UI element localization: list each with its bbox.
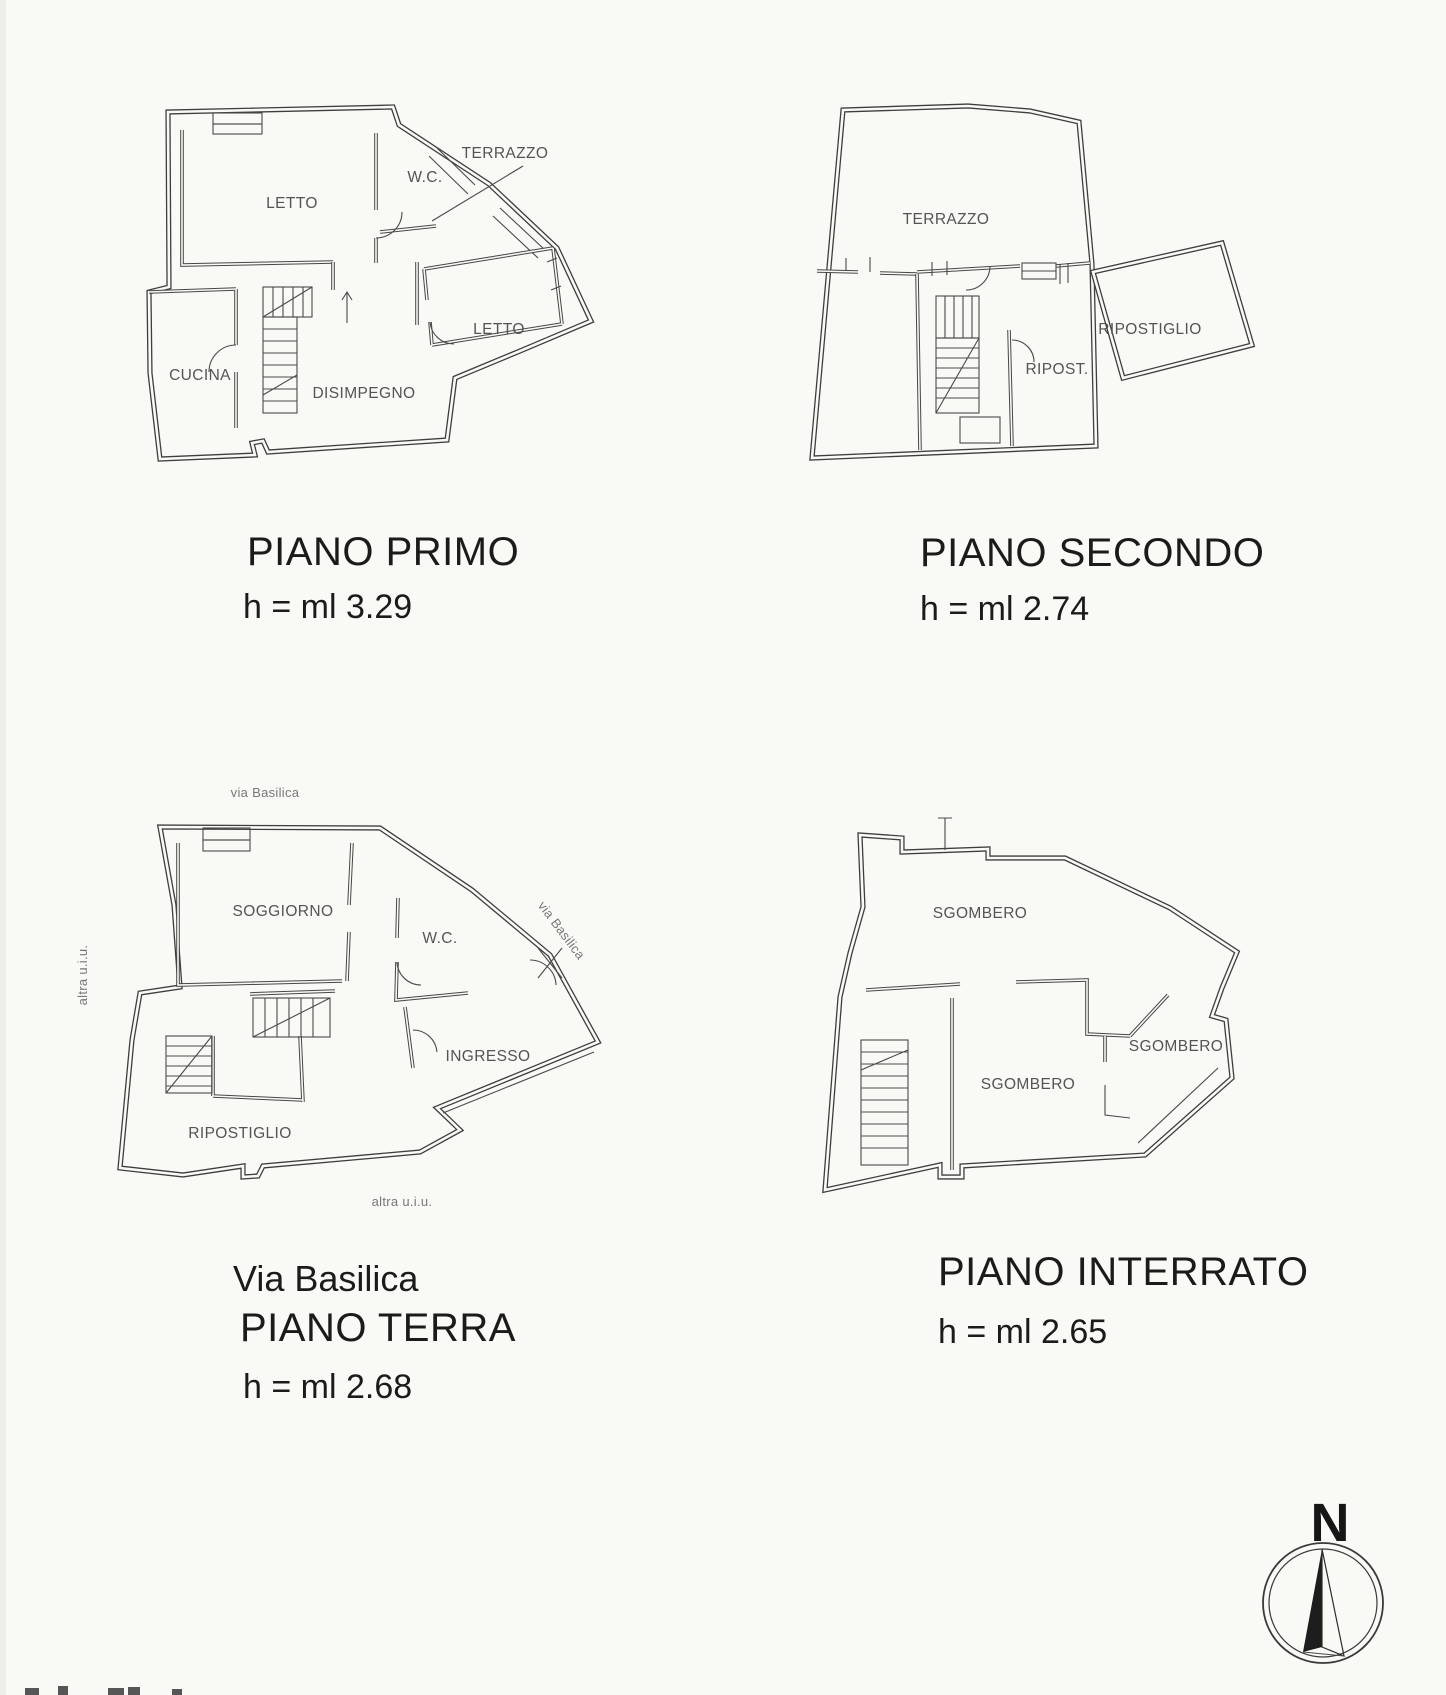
room-label-terrazzo-2: TERRAZZO: [903, 211, 990, 228]
floorplan-sheet: LETTO W.C. TERRAZZO LETTO CUCINA DISIMPE…: [0, 0, 1446, 1695]
plan-height-piano-secondo: h = ml 2.74: [920, 590, 1089, 628]
north-compass: N: [1263, 1493, 1383, 1663]
room-label-letto-2: LETTO: [473, 321, 525, 338]
room-label-ripost: RIPOST.: [1025, 361, 1088, 378]
staircase: [263, 287, 312, 413]
room-label-ripostiglio-terra: RIPOSTIGLIO: [188, 1125, 291, 1142]
compass-outer-circle: [1263, 1543, 1383, 1663]
room-label-wc-terra: W.C.: [422, 930, 457, 947]
room-label-sgombero-2: SGOMBERO: [981, 1076, 1076, 1093]
plan-height-piano-terra: h = ml 2.68: [243, 1368, 412, 1406]
room-label-letto-1: LETTO: [266, 195, 318, 212]
staircase: [936, 296, 1000, 443]
room-label-sgombero-1: SGOMBERO: [933, 905, 1028, 922]
direction-arrow: [342, 292, 352, 323]
room-label-disimpegno: DISIMPEGNO: [312, 385, 415, 402]
annotation-via-basilica-top: via Basilica: [231, 785, 300, 800]
compass-needle-outline: [1322, 1549, 1344, 1656]
plan-height-piano-interrato: h = ml 2.65: [938, 1313, 1107, 1351]
terrace-railing: [429, 147, 545, 258]
plan-piano-terra: SOGGIORNO W.C. INGRESSO RIPOSTIGLIO via …: [75, 785, 598, 1406]
room-label-ripostiglio-2: RIPOSTIGLIO: [1098, 321, 1201, 338]
compass-needle-filled: [1303, 1549, 1322, 1652]
room-label-cucina: CUCINA: [169, 367, 231, 384]
door-arc: [376, 212, 402, 238]
plan-height-piano-primo: h = ml 3.29: [243, 588, 412, 626]
plan-title-piano-secondo: PIANO SECONDO: [920, 531, 1264, 575]
plan-piano-interrato: SGOMBERO SGOMBERO SGOMBERO PIANO INTERRA…: [825, 818, 1309, 1351]
staircase: [861, 1040, 908, 1165]
chimney-mark: [938, 818, 952, 850]
door-posts: [846, 257, 870, 272]
room-label-soggiorno: SOGGIORNO: [233, 903, 334, 920]
annotation-altra-uiu-left: altra u.i.u.: [75, 945, 90, 1006]
plan-title-piano-primo: PIANO PRIMO: [247, 530, 519, 574]
annotation-via-basilica-right: via Basilica: [535, 898, 589, 962]
parapet-detail: [213, 124, 262, 134]
door-arc: [1012, 340, 1034, 362]
parapet-detail: [203, 840, 250, 851]
room-label-wc: W.C.: [407, 169, 442, 186]
door-arc: [397, 962, 421, 985]
room-label-ingresso: INGRESSO: [445, 1048, 530, 1065]
compass-inner-circle: [1269, 1549, 1377, 1657]
door-arc: [413, 1030, 437, 1052]
plan-title-piano-interrato: PIANO INTERRATO: [938, 1250, 1309, 1294]
room-label-sgombero-3: SGOMBERO: [1129, 1038, 1224, 1055]
plan-piano-secondo: TERRAZZO RIPOST. RIPOSTIGLIO PIANO SECON…: [812, 106, 1264, 628]
parapet-detail: [213, 113, 262, 124]
plan-title-piano-terra: PIANO TERRA: [240, 1306, 516, 1350]
illegible-footer-fragment: [25, 1686, 182, 1695]
plan-piano-primo: LETTO W.C. TERRAZZO LETTO CUCINA DISIMPE…: [149, 107, 591, 626]
street-title-via-basilica: Via Basilica: [233, 1258, 419, 1299]
annotation-altra-uiu-bottom: altra u.i.u.: [372, 1194, 433, 1209]
staircase: [166, 998, 330, 1093]
door-posts: [932, 261, 947, 276]
room-label-terrazzo: TERRAZZO: [462, 145, 549, 162]
